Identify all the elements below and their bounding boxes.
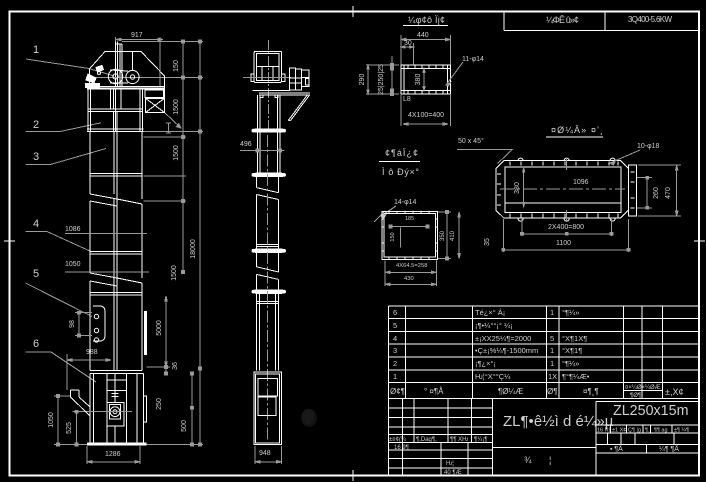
svg-text:1086: 1086: [65, 226, 81, 233]
svg-text:°X¶1X¶: °X¶1X¶: [562, 334, 587, 343]
svg-text:6: 6: [33, 338, 39, 350]
svg-text:5: 5: [33, 268, 39, 280]
svg-text:Ƕ¦°X°°Ç¼: Ƕ¦°X°°Ç¼: [475, 372, 511, 381]
svg-text:525: 525: [66, 422, 73, 434]
svg-text:¼¶ ¶Å: ¼¶ ¶Å: [659, 444, 679, 453]
svg-text:36: 36: [172, 362, 179, 370]
svg-text:948: 948: [259, 450, 271, 457]
svg-text:6: 6: [393, 308, 397, 317]
svg-text:1050: 1050: [48, 412, 55, 428]
svg-text:250: 250: [156, 398, 163, 410]
svg-text:10-φ18: 10-φ18: [637, 143, 660, 150]
svg-text:5: 5: [393, 321, 397, 330]
svg-text:40 ¶Æ: 40 ¶Æ: [444, 470, 462, 476]
svg-text:50 x 45°: 50 x 45°: [458, 137, 484, 145]
svg-text:±1 X¢: ±1 X¢: [612, 428, 626, 434]
svg-text:¼φ¢ô Ïį¢: ¼φ¢ô Ïį¢: [408, 15, 445, 25]
svg-text:Ø¶¸: Ø¶¸: [547, 387, 560, 396]
svg-text:16 RL: 16 RL: [597, 428, 612, 434]
svg-text:14-φ14: 14-φ14: [394, 199, 417, 206]
svg-text:470: 470: [665, 187, 672, 199]
svg-text:4X64.5=258: 4X64.5=258: [396, 263, 427, 269]
svg-text:L8: L8: [403, 96, 411, 103]
svg-text:4X100=400: 4X100=400: [408, 112, 444, 119]
svg-text:150: 150: [390, 232, 396, 241]
svg-text:¶¸: ¶¸: [645, 428, 650, 434]
svg-text:±,X¢: ±,X¢: [665, 387, 683, 397]
svg-text:¤×¼Ø×¼ØÆ: ¤×¼Ø×¼ØÆ: [625, 385, 661, 391]
svg-text:917: 917: [131, 32, 143, 39]
svg-text:ZL250x15m: ZL250x15m: [613, 403, 689, 419]
svg-text:3Q400-5.6KW: 3Q400-5.6KW: [628, 15, 672, 24]
svg-text:Té¿×° Á¡: Té¿×° Á¡: [475, 308, 505, 317]
svg-text:1: 1: [550, 346, 554, 355]
svg-text:4: 4: [33, 218, 39, 230]
svg-text:▪ ¶Å: ▪ ¶Å: [610, 444, 623, 453]
svg-text:1500: 1500: [173, 145, 180, 161]
svg-text:1050: 1050: [65, 261, 81, 268]
svg-text:2: 2: [393, 359, 397, 368]
svg-text:°X¶1¶: °X¶1¶: [562, 346, 582, 355]
svg-text:¾: ¾: [524, 455, 532, 465]
svg-text:¶¼¡¶: ¶¼¡¶: [474, 437, 487, 443]
svg-text:¶¶ ag: ¶¶ ag: [654, 428, 668, 434]
svg-text:1286: 1286: [105, 451, 121, 458]
svg-text:410: 410: [450, 230, 456, 241]
svg-text:Ƕ¦: Ƕ¦: [446, 461, 454, 467]
svg-text:260: 260: [653, 187, 660, 199]
svg-text:35: 35: [484, 238, 491, 246]
svg-text:440: 440: [417, 32, 429, 39]
svg-text:¤¶¸¶: ¤¶¸¶: [583, 387, 599, 396]
svg-text:¼ΦÊ û»¢: ¼ΦÊ û»¢: [546, 15, 579, 25]
svg-text:¶Ø¶¸: ¶Ø¶¸: [630, 393, 643, 399]
svg-text:¤Ø¼Â» ¤'¸: ¤Ø¼Â» ¤'¸: [551, 125, 603, 135]
svg-text:¶Ø¼Æ: ¶Ø¼Æ: [498, 387, 523, 396]
svg-text:°¶¼»: °¶¼»: [562, 359, 579, 368]
svg-text:¢¶áÏ¿¢: ¢¶áÏ¿¢: [385, 148, 418, 158]
svg-text:°¶¼»: °¶¼»: [562, 308, 579, 317]
svg-text:1: 1: [550, 308, 554, 317]
svg-text:±¤¢(¼: ±¤¢(¼: [389, 437, 407, 443]
svg-text:¶¶ XǶ: ¶¶ XǶ: [450, 437, 468, 443]
svg-text:150: 150: [173, 60, 180, 72]
svg-text:¡¶•¼°°¡° ¼¡: ¡¶•¼°°¡° ¼¡: [475, 321, 513, 330]
svg-text:Ø¢¶: Ø¢¶: [390, 387, 405, 396]
svg-text:•Ç±¡%¼¶-1500mm: •Ç±¡%¼¶-1500mm: [475, 346, 538, 355]
svg-text:1500: 1500: [173, 99, 180, 115]
svg-text:Ì ô Ðý×°: Ì ô Ðý×°: [382, 167, 419, 177]
svg-text:25|250|25: 25|250|25: [378, 64, 385, 95]
svg-text:11-φ14: 11-φ14: [462, 56, 484, 63]
svg-text:380: 380: [514, 182, 521, 194]
svg-text:500: 500: [181, 420, 188, 432]
svg-text:¶,Dag¶,: ¶,Dag¶,: [416, 437, 437, 443]
svg-text:¡¶¿×°¡: ¡¶¿×°¡: [475, 359, 496, 368]
svg-text:16 9¶: 16 9¶: [394, 445, 409, 451]
svg-text:988: 988: [86, 349, 98, 356]
svg-text:350: 350: [440, 230, 446, 241]
svg-text:2: 2: [33, 119, 39, 131]
svg-text:° ¤¶Å: ° ¤¶Å: [424, 387, 444, 396]
svg-text:1X: 1X: [548, 372, 557, 381]
svg-text:1500: 1500: [171, 265, 178, 281]
svg-text:290: 290: [359, 74, 366, 86]
svg-text:±¡XX25¼¶=2000: ±¡XX25¼¶=2000: [475, 334, 531, 343]
svg-text:¦: ¦: [549, 455, 551, 465]
svg-text:5000: 5000: [156, 320, 163, 336]
svg-text:380: 380: [415, 74, 422, 86]
svg-text:Ç¶ ¦g: Ç¶ ¦g: [628, 428, 641, 434]
svg-text:¶°¶¼Æ•: ¶°¶¼Æ•: [562, 372, 590, 381]
svg-text:98: 98: [69, 320, 76, 328]
svg-text:4: 4: [393, 334, 397, 343]
svg-text:2X400=800: 2X400=800: [548, 224, 584, 231]
svg-text:3: 3: [393, 346, 397, 355]
svg-text:3: 3: [33, 151, 39, 163]
svg-text:430: 430: [404, 276, 414, 282]
svg-text:±¶ ¼¶: ±¶ ¼¶: [674, 428, 689, 434]
svg-text:5: 5: [550, 334, 554, 343]
svg-text:1: 1: [550, 359, 554, 368]
svg-text:496: 496: [240, 141, 252, 148]
svg-text:18000: 18000: [190, 239, 197, 259]
svg-text:1: 1: [393, 372, 397, 381]
svg-text:1: 1: [33, 44, 39, 56]
svg-text:1096: 1096: [573, 179, 589, 186]
svg-text:185: 185: [405, 216, 414, 222]
svg-text:1100: 1100: [556, 240, 571, 247]
